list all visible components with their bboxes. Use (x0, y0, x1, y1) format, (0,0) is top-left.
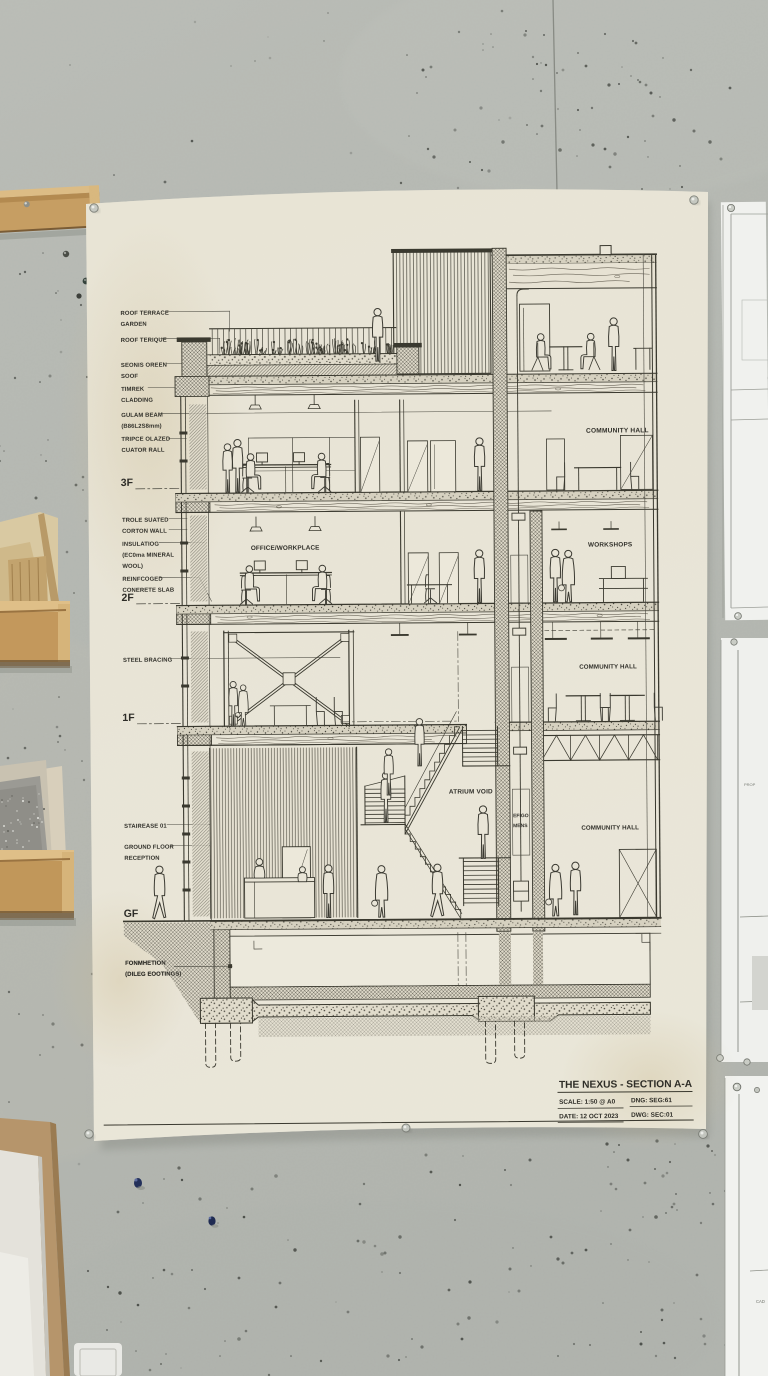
svg-text:ATRIUM VOID: ATRIUM VOID (449, 788, 493, 795)
svg-text:CUATOR RALL: CUATOR RALL (121, 448, 164, 454)
svg-text:1F: 1F (122, 712, 135, 724)
svg-text:SEONIS OREEN: SEONIS OREEN (121, 363, 167, 369)
svg-text:EFIGO: EFIGO (513, 813, 529, 819)
svg-text:ROOF TERIQUE: ROOF TERIQUE (121, 338, 167, 344)
svg-text:GF: GF (124, 908, 139, 920)
svg-text:DNG: SEG:61: DNG: SEG:61 (631, 1097, 672, 1104)
svg-text:CORTON WALL: CORTON WALL (122, 529, 167, 535)
svg-text:REINFCOGED: REINFCOGED (122, 577, 162, 583)
svg-text:RECEPTION: RECEPTION (124, 856, 159, 862)
svg-text:WORKSHOPS: WORKSHOPS (588, 541, 633, 548)
svg-text:DATE: 12 OCT 2023: DATE: 12 OCT 2023 (559, 1113, 619, 1120)
svg-text:TROLE SUATED: TROLE SUATED (122, 518, 169, 524)
svg-text:THE NEXUS - SECTION A-A: THE NEXUS - SECTION A-A (559, 1079, 693, 1091)
svg-text:GARDEN: GARDEN (121, 322, 147, 328)
svg-text:COMMUNITY HALL: COMMUNITY HALL (581, 824, 639, 831)
svg-text:PROP: PROP (744, 782, 756, 787)
svg-text:(EC0ma MINERAL: (EC0ma MINERAL (122, 553, 174, 559)
svg-text:SCALE: 1:50 @ A0: SCALE: 1:50 @ A0 (559, 1099, 616, 1106)
svg-text:(DILEG EOOTINGS): (DILEG EOOTINGS) (125, 972, 181, 978)
svg-text:DWG: SEC:01: DWG: SEC:01 (631, 1112, 673, 1119)
svg-text:STAIREASE 01: STAIREASE 01 (124, 824, 167, 830)
svg-text:TIMREK: TIMREK (121, 387, 145, 393)
svg-text:OFFICE/WORKPLACE: OFFICE/WORKPLACE (251, 545, 320, 552)
svg-text:WOOL): WOOL) (122, 564, 143, 570)
svg-text:CAD: CAD (756, 1299, 765, 1304)
svg-text:ROOF TERRACE: ROOF TERRACE (121, 311, 169, 317)
svg-text:CLADDING: CLADDING (121, 398, 153, 404)
svg-text:2F: 2F (121, 592, 134, 604)
svg-text:COMMUNITY HALL: COMMUNITY HALL (579, 663, 637, 670)
svg-text:TRIPCE OLAZED: TRIPCE OLAZED (121, 437, 170, 443)
svg-text:GROUND FLOOR: GROUND FLOOR (124, 845, 174, 851)
svg-text:INSULATIOG: INSULATIOG (122, 542, 159, 548)
svg-text:MENS: MENS (513, 823, 528, 829)
svg-text:FONMHETION: FONMHETION (125, 961, 166, 967)
svg-text:3F: 3F (121, 477, 134, 489)
svg-text:STEEL BRACING: STEEL BRACING (123, 658, 173, 664)
svg-text:(B86L2S8mm): (B86L2S8mm) (121, 424, 161, 430)
svg-text:SOOF: SOOF (121, 374, 138, 380)
svg-text:GULAM BEAM: GULAM BEAM (121, 413, 163, 419)
svg-text:COMMUNITY HALL: COMMUNITY HALL (586, 427, 649, 434)
